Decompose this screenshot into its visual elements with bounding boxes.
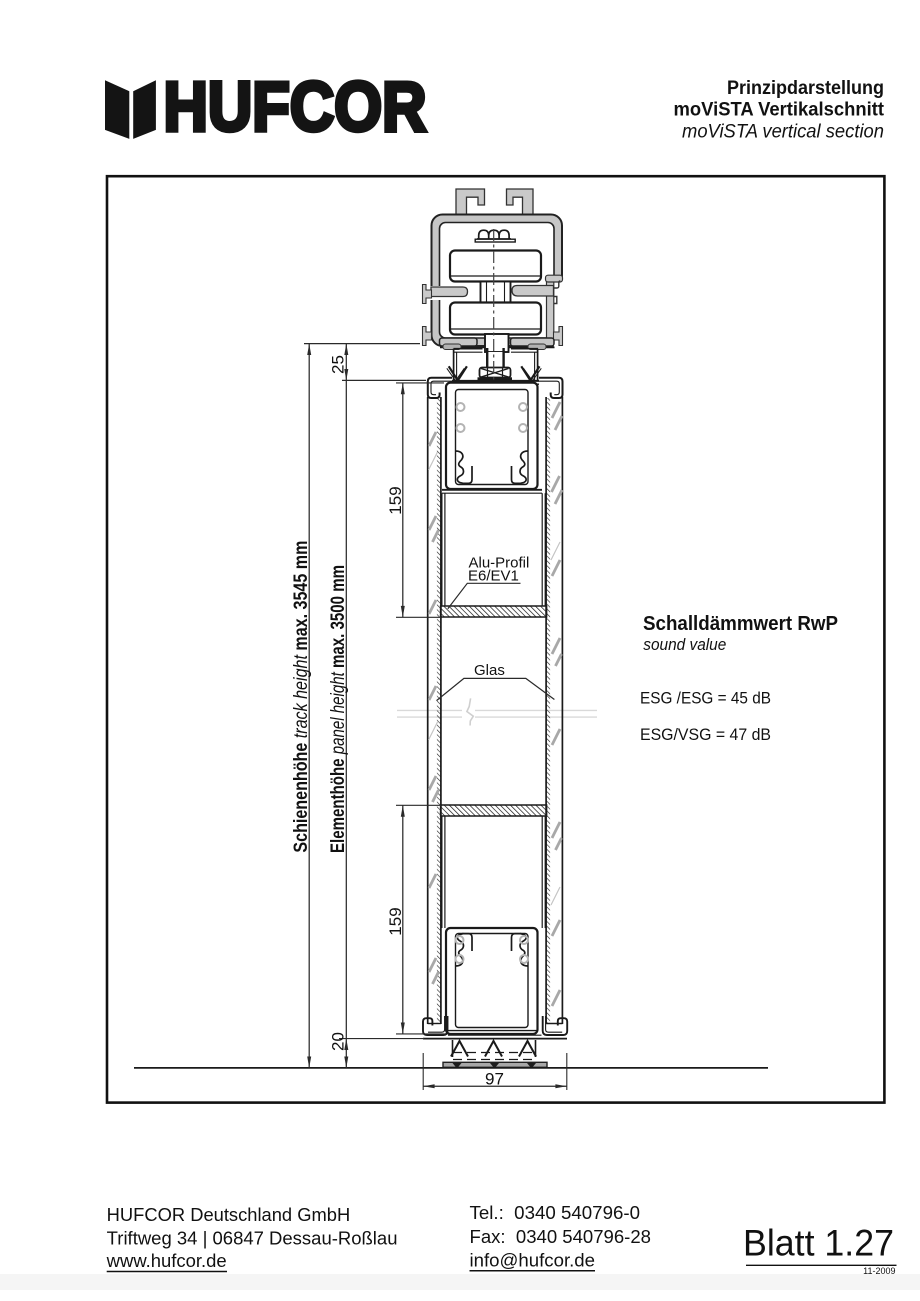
svg-text:Triftweg 34 | 06847 Dessau-Roß: Triftweg 34 | 06847 Dessau-Roßlau: [107, 1229, 398, 1249]
svg-text:Tel.: 0340 540796-0: Tel.: 0340 540796-0: [470, 1203, 641, 1223]
svg-text:sound value: sound value: [643, 636, 726, 654]
svg-text:Glas: Glas: [474, 662, 505, 679]
svg-text:HUFCOR Deutschland GmbH: HUFCOR Deutschland GmbH: [107, 1205, 351, 1225]
svg-text:11-2009: 11-2009: [863, 1266, 895, 1276]
svg-text:info@hufcor.de: info@hufcor.de: [470, 1251, 596, 1271]
svg-text:moViSTA vertical section: moViSTA vertical section: [682, 121, 884, 142]
svg-text:25: 25: [329, 355, 348, 374]
svg-text:Schalldämmwert RwP: Schalldämmwert RwP: [643, 612, 838, 635]
svg-text:E6/EV1: E6/EV1: [468, 568, 519, 585]
svg-text:Fax: 0340 540796-28: Fax: 0340 540796-28: [470, 1227, 652, 1247]
svg-text:Prinzipdarstellung: Prinzipdarstellung: [727, 77, 884, 99]
svg-text:Blatt 1.27: Blatt 1.27: [743, 1222, 894, 1264]
svg-text:ESG /ESG = 45 dB: ESG /ESG = 45 dB: [640, 689, 771, 708]
svg-text:ESG/VSG = 47 dB: ESG/VSG = 47 dB: [640, 725, 771, 744]
svg-text:www.hufcor.de: www.hufcor.de: [106, 1251, 227, 1271]
svg-text:HUFCOR: HUFCOR: [164, 67, 427, 145]
svg-text:159: 159: [386, 486, 405, 514]
svg-text:Schienenhöhe track height max.: Schienenhöhe track height max. 3545 mm: [290, 541, 312, 853]
svg-text:20: 20: [329, 1032, 348, 1051]
svg-text:159: 159: [386, 907, 405, 935]
svg-text:97: 97: [485, 1070, 504, 1089]
svg-text:Elementhöhe panel height max.: Elementhöhe panel height max. 3500 mm: [327, 565, 349, 853]
svg-text:moViSTA Vertikalschnitt: moViSTA Vertikalschnitt: [674, 98, 885, 120]
